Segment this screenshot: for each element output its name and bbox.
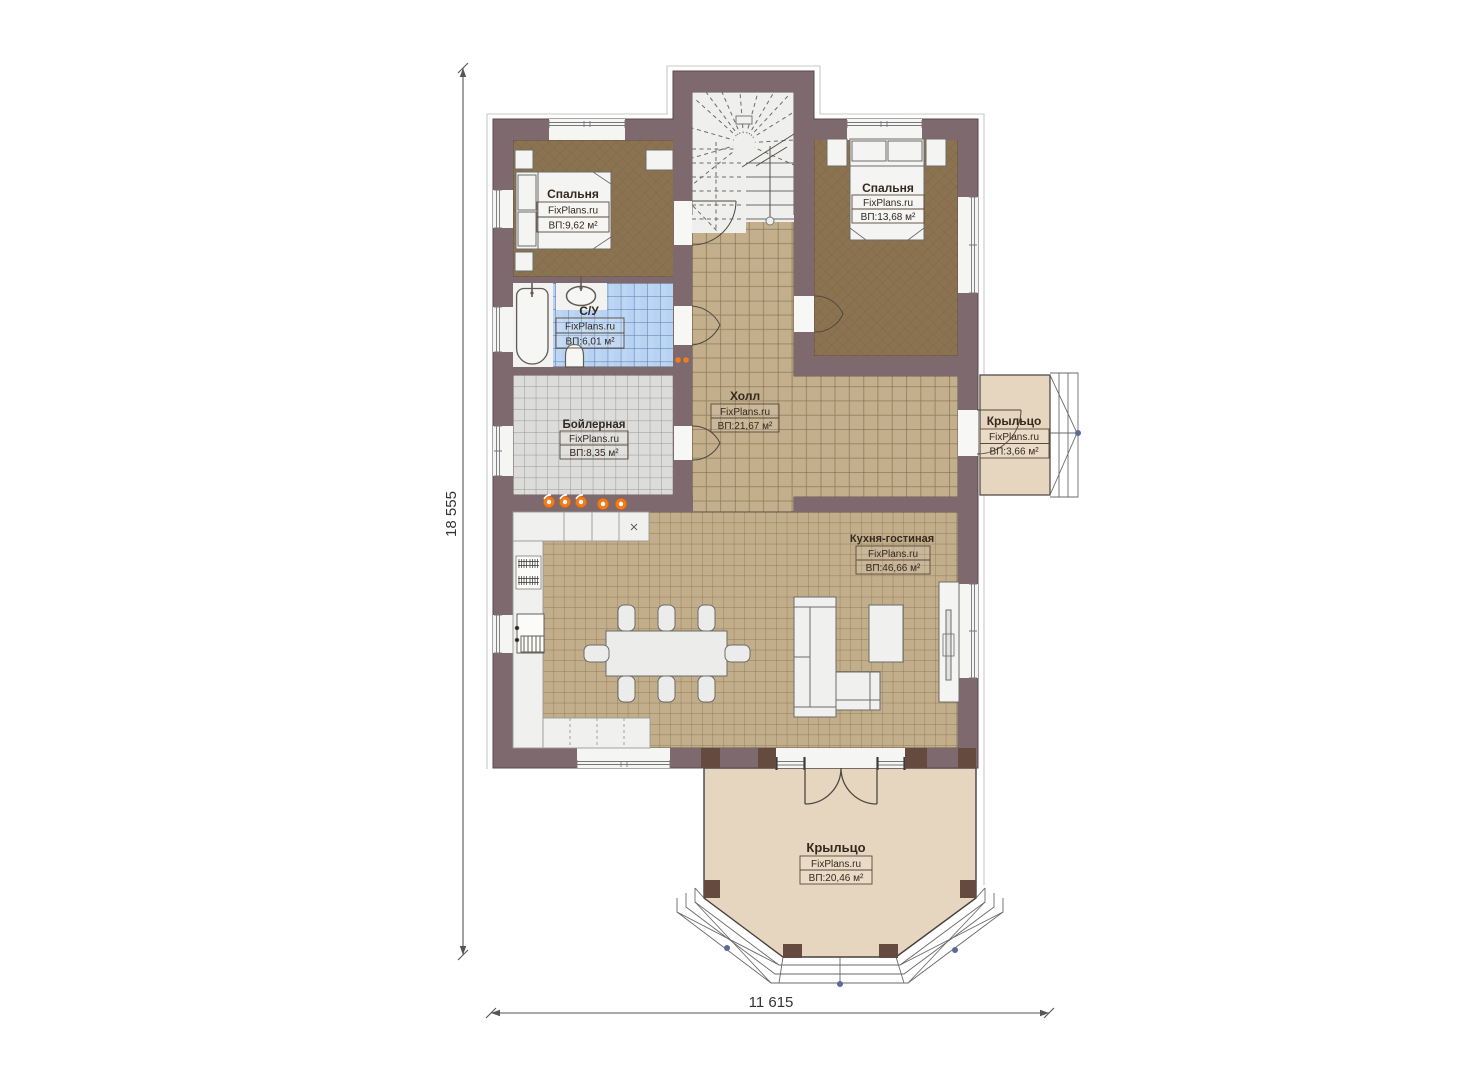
svg-text:FixPlans.ru: FixPlans.ru <box>868 549 918 560</box>
svg-text:FixPlans.ru: FixPlans.ru <box>720 407 770 418</box>
svg-text:Крыльцо: Крыльцо <box>987 414 1042 428</box>
svg-text:Холл: Холл <box>730 389 760 403</box>
svg-text:С/У: С/У <box>579 304 599 318</box>
svg-text:18 555: 18 555 <box>443 491 460 537</box>
svg-text:Спальня: Спальня <box>862 181 914 195</box>
svg-text:Спальня: Спальня <box>547 187 599 201</box>
svg-text:ВП:20,46 м²: ВП:20,46 м² <box>809 873 864 884</box>
svg-text:Кухня-гостиная: Кухня-гостиная <box>850 533 934 545</box>
svg-text:FixPlans.ru: FixPlans.ru <box>989 432 1039 443</box>
svg-text:ВП:6,01 м²: ВП:6,01 м² <box>565 337 615 348</box>
svg-text:Крыльцо: Крыльцо <box>806 840 865 855</box>
svg-text:FixPlans.ru: FixPlans.ru <box>863 198 913 209</box>
svg-text:11 615: 11 615 <box>749 994 794 1011</box>
svg-text:FixPlans.ru: FixPlans.ru <box>569 434 619 445</box>
svg-text:ВП:3,66 м²: ВП:3,66 м² <box>989 447 1039 458</box>
svg-text:Бойлерная: Бойлерная <box>563 419 626 431</box>
svg-text:ВП:21,67 м²: ВП:21,67 м² <box>718 421 773 432</box>
svg-text:FixPlans.ru: FixPlans.ru <box>811 859 861 870</box>
svg-text:ВП:13,68 м²: ВП:13,68 м² <box>861 212 916 223</box>
svg-text:FixPlans.ru: FixPlans.ru <box>548 206 598 217</box>
svg-text:ВП:8,35 м²: ВП:8,35 м² <box>569 448 619 459</box>
svg-text:ВП:46,66 м²: ВП:46,66 м² <box>866 563 921 574</box>
svg-text:FixPlans.ru: FixPlans.ru <box>565 322 615 333</box>
svg-text:ВП:9,62 м²: ВП:9,62 м² <box>548 221 598 232</box>
